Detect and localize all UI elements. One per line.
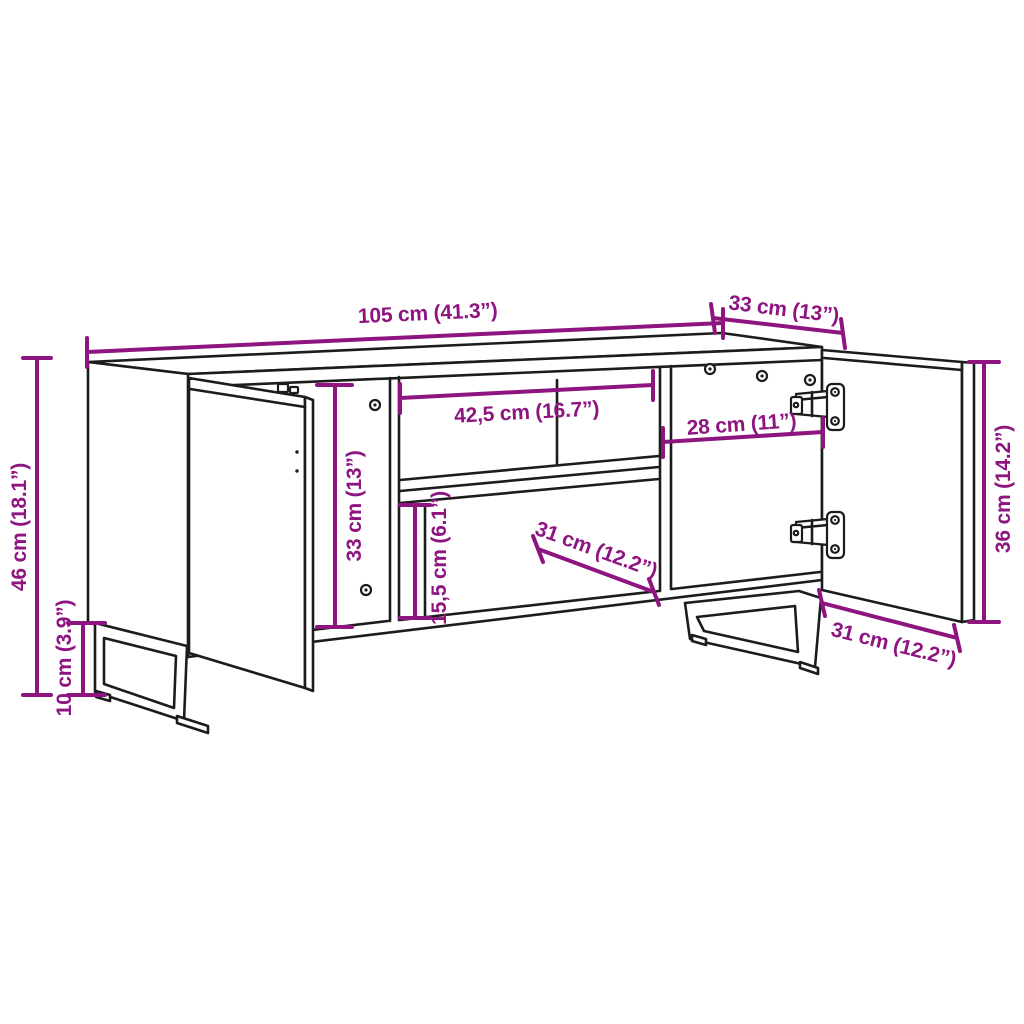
hinge-screw-dot	[834, 420, 836, 422]
left-door-edge	[305, 397, 313, 691]
leg-height-label: 10 cm (3.9”)	[53, 600, 76, 717]
left-door-face	[189, 378, 305, 688]
screw-dot	[373, 403, 376, 406]
door-hole	[295, 450, 298, 453]
hinge-cup-screw	[794, 403, 798, 407]
overall-width-label: 105 cm (41.3”)	[357, 299, 498, 328]
hinge-screw-dot	[834, 548, 836, 550]
screw-dot	[760, 374, 763, 377]
screw-dot	[708, 367, 711, 370]
door-hole	[295, 469, 298, 472]
screw-dot	[364, 588, 367, 591]
dimension-diagram: 105 cm (41.3”) 33 cm (13”) 46 cm (18.1”)…	[0, 0, 1024, 1024]
door-width-label: 31 cm (12.2”)	[829, 618, 959, 671]
left-door-hinge-icon	[278, 384, 288, 392]
left-door-open	[189, 378, 313, 691]
left-leg-foot	[177, 716, 208, 733]
screw-dot	[808, 378, 811, 381]
left-side-panel	[88, 362, 188, 657]
interior-height-label: 33 cm (13”)	[343, 450, 366, 561]
hinge-cup-screw	[794, 531, 798, 535]
lower-compartment-height-label: 15,5 cm (6.1”)	[428, 491, 451, 625]
left-door-hinge-icon	[290, 387, 298, 393]
door-height-label: 36 cm (14.2”)	[992, 425, 1015, 553]
hinge-screw-dot	[834, 519, 836, 521]
hinge-screw-dot	[834, 391, 836, 393]
tv-cabinet-drawing: 105 cm (41.3”) 33 cm (13”) 46 cm (18.1”)…	[0, 0, 1024, 1024]
right-door-edge	[962, 362, 974, 622]
overall-height-label: 46 cm (18.1”)	[8, 463, 31, 591]
